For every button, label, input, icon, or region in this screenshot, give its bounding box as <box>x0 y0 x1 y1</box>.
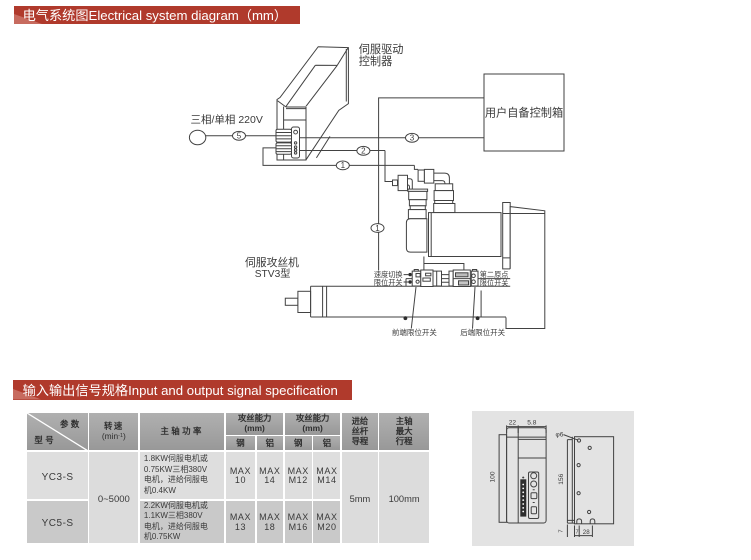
svg-text:156: 156 <box>555 473 565 484</box>
svg-text:1: 1 <box>375 223 380 234</box>
svg-text:三相/单相 220V: 三相/单相 220V <box>191 112 263 127</box>
svg-text:5.8: 5.8 <box>527 417 536 427</box>
svg-text:28: 28 <box>583 527 590 536</box>
svg-text:后端限位开关: 后端限位开关 <box>460 327 505 338</box>
svg-text:3: 3 <box>410 133 415 144</box>
svg-text:7: 7 <box>556 529 564 532</box>
svg-text:STV3型: STV3型 <box>255 265 291 280</box>
svg-text:限位开关: 限位开关 <box>480 278 509 288</box>
svg-text:φ6: φ6 <box>556 429 564 439</box>
svg-text:5: 5 <box>237 131 242 142</box>
svg-text:限位开关: 限位开关 <box>374 278 403 288</box>
svg-text:1: 1 <box>341 160 346 171</box>
svg-text:22: 22 <box>509 417 517 427</box>
svg-text:前端限位开关: 前端限位开关 <box>392 327 437 338</box>
svg-text:7: 7 <box>575 528 578 536</box>
svg-text:用户自备控制箱: 用户自备控制箱 <box>485 105 563 121</box>
svg-text:2: 2 <box>361 146 366 157</box>
svg-text:100: 100 <box>487 471 497 482</box>
svg-text:控制器: 控制器 <box>359 53 393 69</box>
